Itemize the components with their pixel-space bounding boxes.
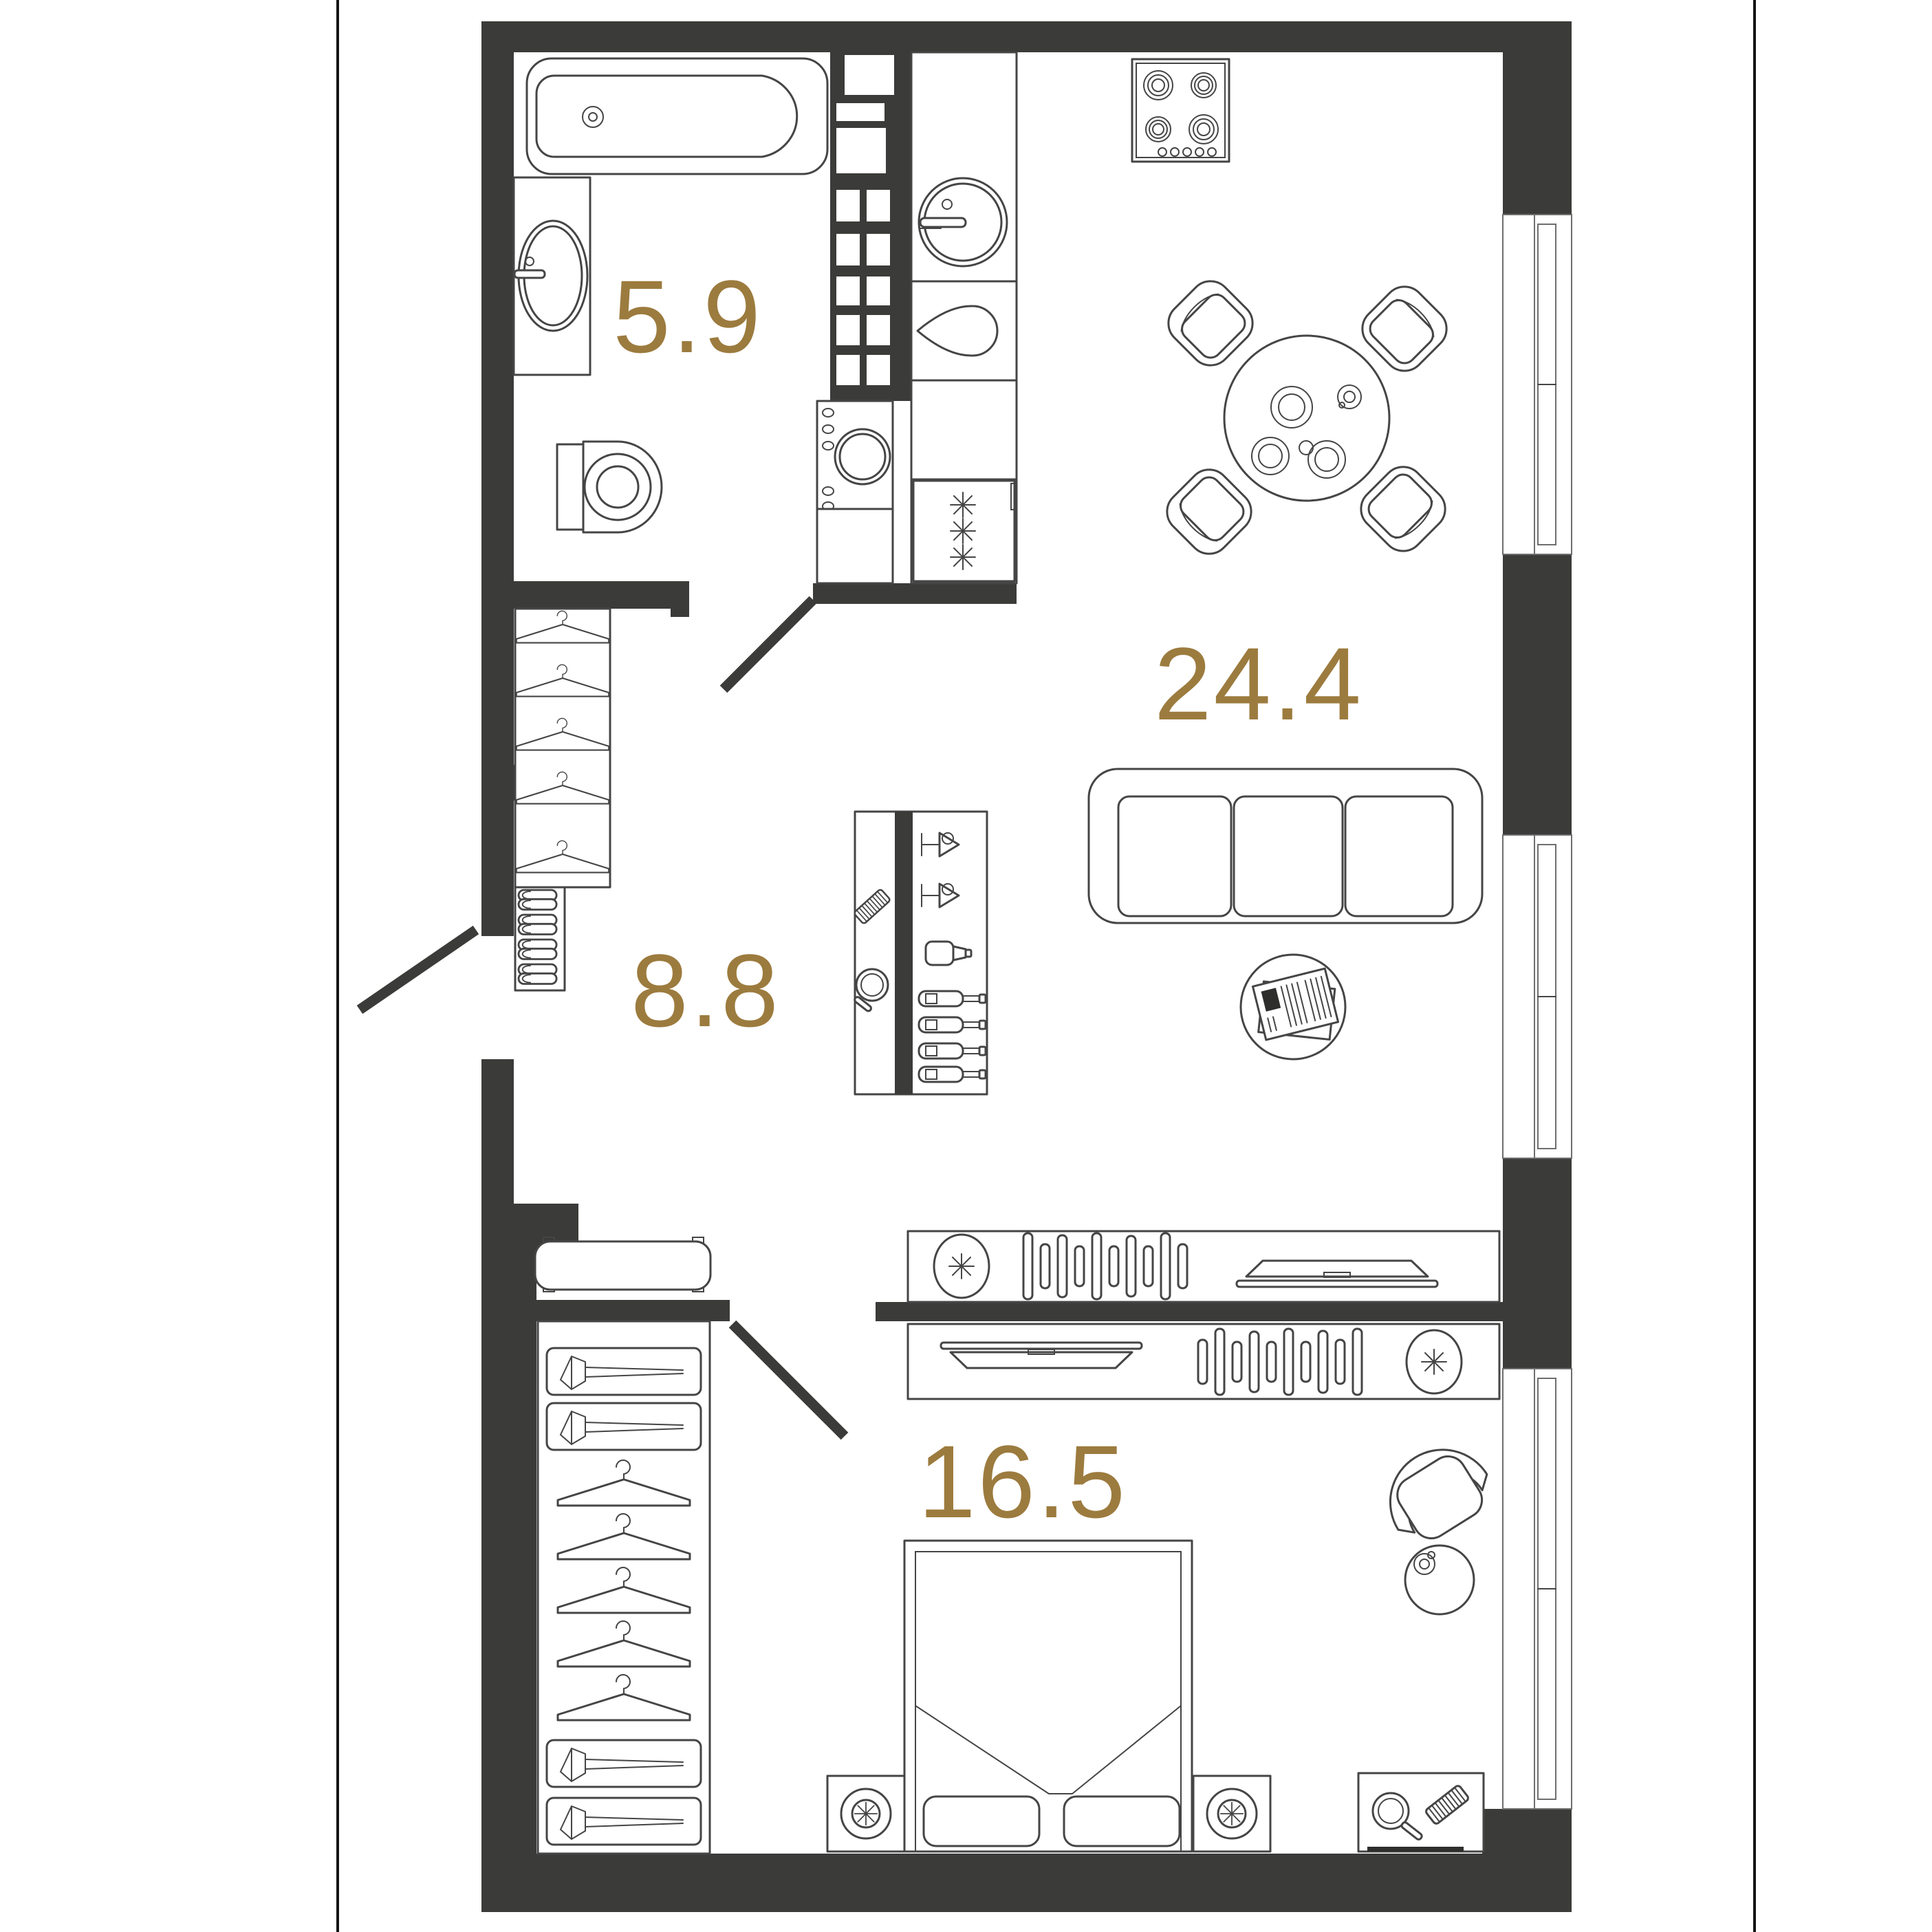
lamp-icon xyxy=(1207,1789,1257,1838)
storage-box-icon xyxy=(547,1348,701,1395)
cooktop xyxy=(1132,59,1229,162)
armchair xyxy=(1371,1430,1501,1553)
lamp-icon xyxy=(841,1789,891,1838)
coat-closet xyxy=(515,609,610,887)
wall-bottom xyxy=(481,1854,1572,1912)
pillow xyxy=(1064,1797,1180,1846)
storage-box-icon xyxy=(547,1403,701,1450)
room-area-label-living: 24.4 xyxy=(1154,626,1363,741)
floor-plan-page: 5.9 24.4 8.8 16.5 xyxy=(0,0,1932,1932)
ventilation-shaft xyxy=(830,52,911,401)
speaker-icon xyxy=(1407,1330,1462,1393)
wall-bathroom-bottom xyxy=(481,581,689,609)
wall-stub xyxy=(671,609,689,617)
kitchen-sink xyxy=(919,178,1007,266)
window-2 xyxy=(1503,835,1572,1158)
room-area-label-hallway: 8.8 xyxy=(631,933,781,1048)
washing-machine xyxy=(817,401,893,583)
wall-left-upper xyxy=(481,21,514,936)
pillow xyxy=(924,1797,1039,1846)
nightstand xyxy=(827,1776,904,1852)
door-swing-bathroom xyxy=(724,600,813,689)
fridge xyxy=(913,481,1017,581)
cabinet-under-washer xyxy=(817,509,893,583)
washbasin xyxy=(514,177,590,375)
toilet xyxy=(557,442,662,532)
snowflake-icon xyxy=(951,545,975,569)
wall-corner-br xyxy=(1482,1809,1572,1857)
wall-right-c xyxy=(1503,1158,1572,1369)
dining-chair xyxy=(1158,461,1259,562)
wall-left-mid xyxy=(481,1059,514,1207)
vanity-desk xyxy=(1358,1773,1484,1852)
kitchen-counter xyxy=(911,52,1017,583)
storage-box-icon xyxy=(547,1798,701,1845)
slippers-icon xyxy=(519,964,556,984)
tv-stand-bedroom xyxy=(908,1324,1499,1399)
bench xyxy=(535,1237,710,1292)
wall-right-a xyxy=(1503,21,1572,215)
dining-table xyxy=(1224,336,1389,501)
nightstand xyxy=(1193,1776,1270,1852)
wardrobe xyxy=(538,1321,710,1854)
tv-stand-living xyxy=(908,1231,1499,1302)
dining-set xyxy=(1158,272,1455,562)
wall-living-bedroom xyxy=(876,1302,1503,1321)
window-1 xyxy=(1503,215,1572,554)
wall-hall-bedroom xyxy=(481,1300,730,1321)
tv-icon xyxy=(1237,1261,1437,1287)
door-swing-entrance xyxy=(360,930,476,1010)
sofa xyxy=(1089,769,1482,923)
dining-chair xyxy=(1160,272,1261,373)
pen-icon xyxy=(1367,1847,1464,1852)
wall-left-bedroom xyxy=(481,1245,536,1912)
slipper-shelf xyxy=(515,887,565,990)
tv-icon xyxy=(941,1343,1142,1368)
storage-box-icon xyxy=(547,1740,701,1787)
bathtub xyxy=(527,58,827,174)
speaker-icon xyxy=(934,1235,989,1298)
slippers-icon xyxy=(519,915,556,935)
floor-plan-canvas: 5.9 24.4 8.8 16.5 xyxy=(0,0,1932,1932)
wall-top xyxy=(481,21,1572,52)
wall-right-b xyxy=(1503,554,1572,835)
coffee-table xyxy=(1241,955,1345,1059)
room-area-label-bathroom: 5.9 xyxy=(613,259,763,374)
bed xyxy=(904,1541,1192,1852)
bar-cabinet xyxy=(854,812,987,1094)
slippers-icon xyxy=(519,940,556,959)
wall-kitchen xyxy=(813,583,1017,604)
side-table xyxy=(1405,1545,1474,1614)
door-swing-bedroom xyxy=(732,1324,845,1436)
room-area-label-bedroom: 16.5 xyxy=(918,1424,1127,1539)
window-3 xyxy=(1503,1369,1572,1809)
slippers-icon xyxy=(519,890,556,910)
snowflake-icon xyxy=(951,492,975,517)
windows xyxy=(1503,215,1572,1809)
snowflake-icon xyxy=(951,519,975,543)
